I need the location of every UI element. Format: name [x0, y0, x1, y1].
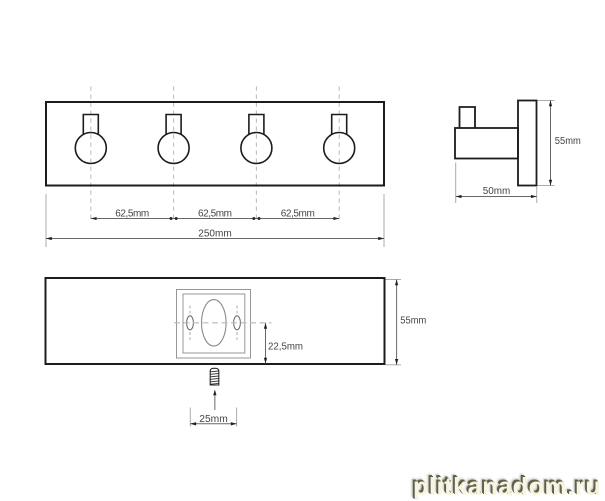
svg-text:50mm: 50mm: [483, 186, 511, 197]
svg-text:250mm: 250mm: [198, 228, 232, 239]
svg-text:22,5mm: 22,5mm: [268, 342, 303, 353]
svg-text:62,5mm: 62,5mm: [281, 208, 315, 219]
svg-text:55mm: 55mm: [400, 316, 426, 327]
svg-text:62,5mm: 62,5mm: [198, 208, 232, 219]
svg-text:25mm: 25mm: [199, 414, 228, 425]
svg-text:55mm: 55mm: [555, 136, 581, 147]
svg-text:62,5mm: 62,5mm: [115, 208, 149, 219]
